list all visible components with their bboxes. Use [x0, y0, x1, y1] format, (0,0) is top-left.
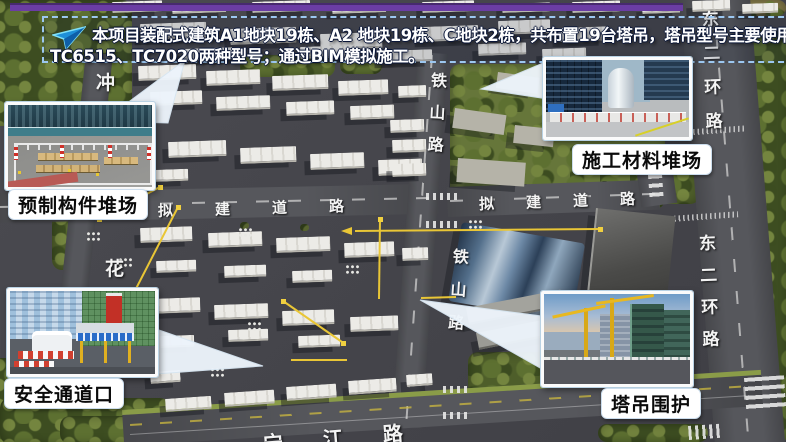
photo-green-tower — [630, 304, 664, 360]
photo-fence-row — [550, 112, 686, 122]
material-yard-label: 施工材料堆场 — [572, 144, 712, 175]
building-block — [156, 260, 196, 273]
building-block — [208, 231, 262, 248]
road-label-tieshan-upper: 铁山路 — [421, 71, 450, 168]
building-block — [298, 335, 340, 348]
project-info-banner: 本项目装配式建筑A1地块19栋、A2 地块19栋、C地块2栋，共布置19台塔吊，… — [42, 16, 786, 63]
footprint-dots — [238, 227, 254, 238]
safety-gate-photo — [7, 288, 158, 377]
photo-striped-post — [60, 145, 64, 158]
photo-fence-posts — [16, 145, 150, 150]
road-label-chong: 冲 — [96, 68, 115, 95]
footprint-dots — [468, 219, 484, 230]
building-block — [310, 152, 365, 170]
material-yard-photo — [543, 57, 692, 140]
photo-detail — [96, 173, 99, 176]
crane-enclosure-photo — [541, 291, 693, 387]
photo-crane-mast — [584, 308, 588, 358]
crosswalk — [688, 424, 723, 440]
photo-green-tower — [664, 310, 690, 360]
photo-detail — [68, 169, 71, 172]
photo-site-fence — [544, 357, 690, 360]
crosswalk — [443, 412, 471, 419]
building-block — [292, 270, 332, 283]
photo-silo — [608, 68, 634, 108]
photo-canopy-post — [128, 341, 131, 363]
photo-striped-post — [147, 147, 151, 160]
building-block — [140, 226, 192, 243]
photo-ground — [544, 358, 690, 384]
photo-barrier — [18, 351, 74, 359]
footprint-dots — [86, 231, 102, 242]
road-label-ring-lower: 东二环路 — [693, 234, 722, 363]
photo-striped-post — [14, 147, 18, 160]
photo-precast-stack — [38, 153, 98, 161]
building-block — [276, 236, 330, 253]
building-block — [224, 265, 266, 278]
crane-enclosure-label: 塔吊围护 — [601, 388, 701, 419]
prefab-yard-label: 预制构件堆场 — [8, 189, 148, 220]
building-block — [206, 69, 260, 86]
prefab-yard-photo — [5, 102, 155, 190]
photo-blue-equipment — [548, 104, 564, 112]
building-block — [272, 74, 328, 91]
photo-gray-building — [600, 314, 630, 358]
building-block — [398, 85, 426, 98]
photo-precast-stack — [104, 157, 138, 165]
photo-striped-post — [108, 145, 112, 158]
banner-text-line2: TC6515、TC7020两种型号；通过BIM模拟施工。 — [50, 43, 424, 67]
photo-canopy-banner — [76, 333, 134, 341]
safety-gate-label: 安全通道口 — [4, 378, 124, 409]
road-label-hua: 花 — [105, 254, 124, 281]
photo-crane-mast — [610, 298, 614, 358]
building-block — [216, 95, 270, 111]
photo-detail — [18, 171, 21, 174]
crosswalk — [426, 221, 460, 228]
photo-white-tent — [32, 331, 72, 351]
building-block — [338, 79, 388, 96]
building-block — [168, 140, 227, 158]
building-block — [160, 335, 194, 348]
tree-patch — [300, 224, 309, 231]
footprint-dots — [210, 367, 226, 378]
photo-city-silhouette — [544, 332, 604, 350]
building-block — [406, 373, 433, 387]
crosswalk — [426, 193, 460, 200]
building-block — [350, 104, 394, 120]
crosswalk — [744, 375, 786, 410]
building-block — [286, 100, 334, 116]
top-accent-bar — [10, 3, 683, 11]
building-block — [402, 247, 428, 261]
footprint-dots — [345, 264, 361, 275]
building-block — [344, 241, 394, 258]
building-block — [350, 315, 398, 332]
photo-foreground — [10, 367, 155, 374]
building-block — [282, 309, 334, 326]
park-footprint — [456, 158, 526, 187]
photo-tower-right — [644, 60, 689, 100]
footprint-dots — [247, 321, 263, 332]
building-block — [240, 146, 297, 164]
photo-canopy-post — [104, 341, 107, 363]
crosswalk — [443, 386, 471, 393]
building-block — [152, 169, 188, 182]
building-block — [150, 90, 202, 106]
photo-canopy-roof — [76, 323, 134, 333]
photo-red-hoist — [106, 293, 122, 327]
building-block — [390, 119, 424, 133]
photo-teal-shed — [8, 127, 155, 136]
building-block — [214, 303, 268, 320]
building-block — [742, 3, 778, 14]
photo-canopy-post — [80, 341, 83, 363]
bim-site-plan-slide: 东二环路 东二环路 铁山路 铁山路 拟建道路 拟建道路 花 冲 宁江路 — [0, 0, 786, 442]
